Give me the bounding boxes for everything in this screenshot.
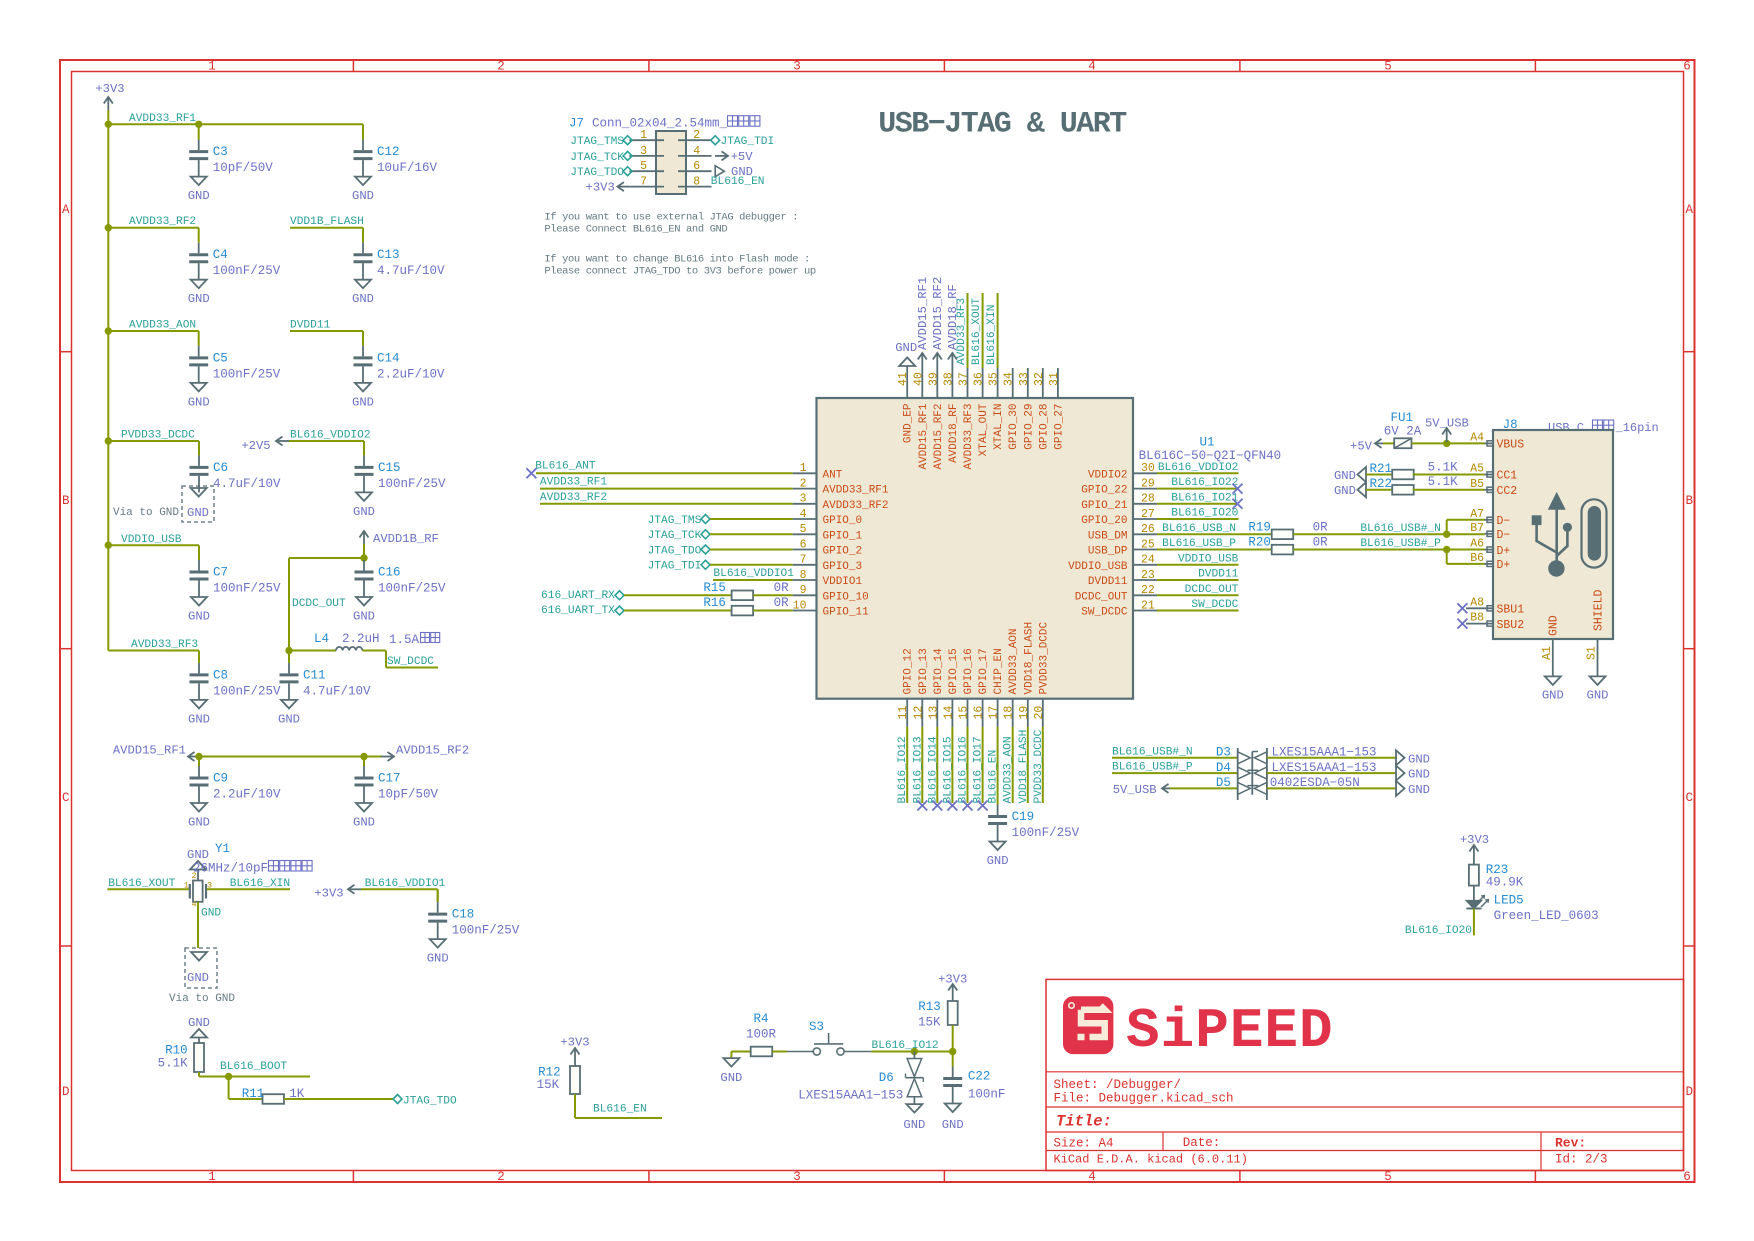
svg-text:25: 25 [1141, 538, 1155, 551]
svg-text:Rev:: Rev: [1555, 1136, 1586, 1151]
svg-text:VDD1B_FLASH: VDD1B_FLASH [290, 216, 364, 228]
svg-text:C: C [62, 791, 70, 805]
svg-text:100nF/25V: 100nF/25V [1012, 826, 1080, 840]
svg-text:5V_USB: 5V_USB [1113, 783, 1157, 797]
svg-text:GND: GND [187, 971, 209, 985]
svg-text:6: 6 [800, 538, 807, 551]
svg-text:VDD18_FLASH: VDD18_FLASH [1018, 730, 1030, 804]
svg-text:0R: 0R [1313, 520, 1329, 534]
svg-text:40: 40 [912, 372, 925, 386]
svg-text:BL616_IO20: BL616_IO20 [1405, 925, 1472, 937]
svg-text:2: 2 [192, 871, 197, 881]
svg-text:SBU1: SBU1 [1497, 604, 1525, 617]
svg-text:A: A [1685, 203, 1693, 217]
svg-text:AVDD15_RF1: AVDD15_RF1 [113, 744, 186, 758]
svg-text:BL616_IO21: BL616_IO21 [1171, 492, 1238, 504]
svg-text:R16: R16 [703, 596, 726, 610]
svg-text:C4: C4 [213, 248, 228, 262]
svg-text:4: 4 [800, 508, 807, 521]
svg-text:BL616_XIN: BL616_XIN [986, 305, 998, 365]
svg-text:15K: 15K [537, 1078, 560, 1092]
svg-text:+5V: +5V [731, 150, 754, 164]
svg-text:6V 2A: 6V 2A [1384, 425, 1422, 439]
svg-text:DCDC_OUT: DCDC_OUT [1185, 584, 1239, 596]
svg-text:JTAG_TDO: JTAG_TDO [403, 1096, 457, 1108]
svg-text:5: 5 [800, 523, 807, 536]
svg-text:0R: 0R [1313, 536, 1329, 550]
svg-text:JTAG_TDI: JTAG_TDI [648, 561, 702, 573]
svg-text:BL616_USB#_P: BL616_USB#_P [1112, 762, 1193, 774]
svg-text:GPIO_12: GPIO_12 [903, 648, 915, 694]
svg-text:GND: GND [188, 712, 210, 726]
svg-text:Conn_02x04_2.54mm_: Conn_02x04_2.54mm_ [592, 117, 728, 131]
svg-text:9: 9 [800, 584, 807, 597]
svg-text:32: 32 [1033, 372, 1046, 386]
svg-text:USB−JTAG & UART: USB−JTAG & UART [878, 108, 1127, 142]
svg-text:FU1: FU1 [1391, 411, 1414, 425]
svg-text:JTAG_TDO: JTAG_TDO [648, 545, 702, 557]
svg-text:100nF/25V: 100nF/25V [213, 582, 281, 596]
svg-text:10pF/50V: 10pF/50V [378, 788, 439, 802]
svg-text:VDDIO_USB: VDDIO_USB [1178, 553, 1239, 565]
svg-text:Y1: Y1 [215, 842, 230, 856]
svg-text:DVDD11: DVDD11 [290, 320, 331, 332]
svg-text:34: 34 [1003, 372, 1016, 386]
svg-text:20: 20 [1033, 706, 1046, 720]
svg-text:C14: C14 [377, 351, 400, 365]
svg-text:GPIO_13: GPIO_13 [918, 648, 930, 694]
svg-text:B7: B7 [1470, 522, 1484, 535]
svg-text:100R: 100R [746, 1028, 777, 1042]
svg-text:1.5A: 1.5A [389, 633, 420, 647]
svg-text:AVDD33_AON: AVDD33_AON [129, 320, 196, 332]
svg-text:35: 35 [988, 372, 1001, 386]
svg-text:GPIO_11: GPIO_11 [823, 607, 870, 619]
svg-text:+3V3: +3V3 [586, 181, 615, 195]
svg-text:D+: D+ [1497, 559, 1511, 572]
svg-text:37: 37 [958, 372, 971, 386]
svg-text:AVDD15_RF1: AVDD15_RF1 [916, 277, 930, 350]
svg-text:GND: GND [188, 395, 210, 409]
svg-text:BL616_IO17: BL616_IO17 [973, 736, 985, 803]
svg-text:GND: GND [353, 610, 375, 624]
svg-text:15: 15 [958, 706, 971, 720]
svg-text:AVDD33_RF2: AVDD33_RF2 [540, 492, 607, 504]
svg-text:+3V3: +3V3 [314, 887, 343, 901]
svg-text:GND: GND [1334, 469, 1356, 483]
svg-text:R11: R11 [242, 1087, 265, 1101]
svg-text:16: 16 [973, 706, 986, 720]
svg-text:100nF/25V: 100nF/25V [378, 477, 446, 491]
svg-text:A: A [62, 203, 70, 217]
svg-text:AVDD33_RF1: AVDD33_RF1 [129, 113, 196, 125]
svg-text:Title:: Title: [1056, 1113, 1112, 1131]
svg-text:PVDD33_DCDC: PVDD33_DCDC [1033, 729, 1045, 803]
svg-text:Via to GND: Via to GND [169, 993, 235, 1005]
svg-text:5: 5 [1384, 1170, 1392, 1184]
svg-text:1: 1 [800, 462, 807, 475]
svg-text:+3V3: +3V3 [95, 82, 124, 96]
svg-text:AVDD33_RF2: AVDD33_RF2 [129, 216, 196, 228]
svg-text:5.1K: 5.1K [1428, 461, 1459, 475]
svg-text:Size: A4: Size: A4 [1054, 1137, 1114, 1151]
svg-text:J7: J7 [569, 117, 584, 131]
svg-text:R21: R21 [1370, 462, 1393, 476]
svg-text:GND: GND [353, 816, 375, 830]
svg-text:BL616_VDDIO2: BL616_VDDIO2 [290, 430, 371, 442]
svg-text:15K: 15K [918, 1016, 941, 1030]
svg-text:GND: GND [427, 952, 449, 966]
svg-text:VDDIO2: VDDIO2 [1088, 469, 1128, 481]
svg-text:B6: B6 [1470, 552, 1484, 565]
svg-text:C15: C15 [378, 461, 401, 475]
svg-text:ANT: ANT [823, 469, 843, 481]
svg-text:4: 4 [1088, 60, 1096, 74]
svg-text:SW_DCDC: SW_DCDC [1191, 599, 1238, 611]
svg-text:100nF/25V: 100nF/25V [213, 264, 281, 278]
svg-text:BL616_IO20: BL616_IO20 [1171, 508, 1238, 520]
svg-text:2: 2 [800, 477, 807, 490]
svg-text:SW_DCDC: SW_DCDC [1081, 607, 1128, 619]
svg-text:27: 27 [1141, 508, 1155, 521]
svg-text:3: 3 [793, 1170, 801, 1184]
svg-text:GND: GND [188, 292, 210, 306]
svg-text:38: 38 [942, 372, 955, 386]
svg-text:BL616_VDDIO1: BL616_VDDIO1 [365, 878, 446, 890]
svg-text:GND: GND [895, 341, 917, 355]
svg-text:26MHz/10pF: 26MHz/10pF [193, 862, 268, 876]
svg-text:BL616_EN: BL616_EN [593, 1104, 647, 1116]
svg-text:13: 13 [927, 706, 940, 720]
svg-text:D+: D+ [1497, 545, 1511, 558]
svg-text:JTAG_TDO: JTAG_TDO [570, 167, 624, 179]
svg-text:_16pin: _16pin [1615, 421, 1659, 435]
svg-text:BL616_IO16: BL616_IO16 [958, 736, 970, 803]
svg-text:GPIO_27: GPIO_27 [1053, 404, 1065, 450]
svg-text:SHIELD: SHIELD [1592, 589, 1605, 631]
svg-text:18: 18 [1003, 706, 1016, 720]
svg-text:BL616_VDDIO1: BL616_VDDIO1 [713, 568, 794, 580]
svg-text:26: 26 [1141, 523, 1155, 536]
svg-text:1: 1 [208, 1170, 216, 1184]
svg-text:616_UART_TX: 616_UART_TX [541, 605, 615, 617]
svg-text:BL616_ANT: BL616_ANT [535, 460, 596, 472]
svg-text:C9: C9 [213, 772, 228, 786]
svg-text:BL616_XOUT: BL616_XOUT [971, 298, 983, 365]
svg-text:VDD18_FLASH: VDD18_FLASH [1023, 622, 1035, 695]
svg-text:8: 8 [800, 569, 807, 582]
svg-text:10pF/50V: 10pF/50V [213, 161, 274, 175]
svg-text:Please Connect BL616_EN and GN: Please Connect BL616_EN and GND [544, 224, 727, 236]
svg-text:GND: GND [1408, 752, 1430, 766]
svg-text:BL616_USB_P: BL616_USB_P [1162, 538, 1236, 550]
svg-text:5: 5 [1384, 60, 1392, 74]
svg-text:CC2: CC2 [1497, 485, 1518, 498]
svg-text:DCDC_OUT: DCDC_OUT [1075, 591, 1128, 603]
svg-text:21: 21 [1141, 599, 1155, 612]
svg-text:GND: GND [987, 854, 1009, 868]
svg-text:1: 1 [184, 881, 189, 891]
svg-text:GND: GND [942, 1118, 964, 1132]
svg-text:LXES15AAA1−153: LXES15AAA1−153 [798, 1089, 903, 1103]
svg-text:AVDD33_AON: AVDD33_AON [1003, 736, 1015, 803]
svg-text:AVDD33_RF2: AVDD33_RF2 [823, 500, 889, 512]
svg-text:GND: GND [187, 506, 209, 520]
svg-text:JTAG_TMS: JTAG_TMS [648, 515, 702, 527]
svg-text:31: 31 [1048, 372, 1061, 386]
svg-text:S1: S1 [1586, 646, 1599, 660]
svg-text:AVDD33_RF1: AVDD33_RF1 [823, 485, 889, 497]
svg-text:GPIO_15: GPIO_15 [948, 648, 960, 694]
svg-text:100nF/25V: 100nF/25V [213, 684, 281, 698]
svg-text:GND: GND [1542, 689, 1564, 703]
svg-text:10: 10 [793, 599, 807, 612]
svg-text:Date:: Date: [1183, 1136, 1221, 1150]
svg-text:VDDIO_USB: VDDIO_USB [121, 534, 182, 546]
svg-text:Via to GND: Via to GND [113, 507, 179, 519]
svg-text:D5: D5 [1216, 776, 1231, 790]
svg-text:C19: C19 [1012, 810, 1035, 824]
svg-text:DVDD11: DVDD11 [1088, 576, 1128, 588]
svg-text:BL616_IO22: BL616_IO22 [1171, 477, 1238, 489]
svg-text:GND: GND [353, 505, 375, 519]
svg-text:GPIO_28: GPIO_28 [1038, 404, 1050, 450]
svg-text:AVDD33_RF3: AVDD33_RF3 [131, 639, 198, 651]
svg-text:Please connect JTAG_TDO to 3V3: Please connect JTAG_TDO to 3V3 before po… [544, 265, 816, 277]
svg-text:+2V5: +2V5 [241, 439, 270, 453]
svg-text:JTAG_TCK: JTAG_TCK [648, 530, 702, 542]
svg-text:SiPEED: SiPEED [1126, 999, 1334, 1063]
svg-text:AVDD18_RF: AVDD18_RF [948, 404, 960, 463]
svg-text:AVDD15_RF2: AVDD15_RF2 [933, 404, 945, 470]
svg-text:C13: C13 [377, 248, 400, 262]
svg-text:4: 4 [693, 145, 700, 158]
svg-text:0R: 0R [774, 581, 790, 595]
svg-text:GND: GND [278, 712, 300, 726]
svg-text:GPIO_20: GPIO_20 [1081, 515, 1127, 527]
svg-text:BL616_BOOT: BL616_BOOT [220, 1061, 287, 1073]
svg-text:GND: GND [188, 610, 210, 624]
svg-text:GND: GND [1408, 768, 1430, 782]
svg-text:4.7uF/10V: 4.7uF/10V [213, 477, 281, 491]
svg-text:C18: C18 [452, 908, 475, 922]
svg-text:VDDIO1: VDDIO1 [823, 576, 863, 588]
svg-text:A1: A1 [1541, 646, 1554, 660]
svg-text:Sheet: /Debugger/: Sheet: /Debugger/ [1054, 1078, 1182, 1092]
svg-text:GND: GND [352, 292, 374, 306]
svg-text:24: 24 [1141, 554, 1155, 567]
svg-text:39: 39 [927, 372, 940, 386]
svg-text:CC1: CC1 [1497, 470, 1518, 483]
svg-text:100nF/25V: 100nF/25V [378, 582, 446, 596]
svg-text:A6: A6 [1470, 538, 1484, 551]
svg-text:C22: C22 [968, 1069, 991, 1083]
svg-text:GND: GND [352, 189, 374, 203]
svg-text:JTAG_TDI: JTAG_TDI [721, 136, 775, 148]
svg-text:S3: S3 [809, 1020, 824, 1034]
svg-text:GND: GND [720, 1071, 742, 1085]
svg-text:JTAG_TCK: JTAG_TCK [570, 152, 624, 164]
svg-text:GND: GND [188, 189, 210, 203]
svg-text:5.1K: 5.1K [1428, 475, 1459, 489]
svg-text:C8: C8 [213, 668, 228, 682]
svg-text:B8: B8 [1470, 612, 1484, 625]
svg-text:0R: 0R [774, 596, 790, 610]
svg-text:19: 19 [1018, 706, 1031, 720]
svg-text:GPIO_17: GPIO_17 [978, 648, 990, 694]
svg-text:Green_LED_0603: Green_LED_0603 [1494, 909, 1599, 923]
svg-text:GPIO_3: GPIO_3 [823, 561, 863, 573]
svg-text:6: 6 [1683, 1170, 1691, 1184]
svg-text:1: 1 [640, 129, 647, 142]
svg-text:3: 3 [800, 493, 807, 506]
svg-text:2.2uF/10V: 2.2uF/10V [213, 788, 281, 802]
svg-text:AVDD15_RF2: AVDD15_RF2 [931, 277, 945, 350]
svg-text:C6: C6 [213, 461, 228, 475]
svg-text:2: 2 [497, 1170, 505, 1184]
svg-text:GPIO_21: GPIO_21 [1081, 500, 1128, 512]
svg-text:BL616_USB#_N: BL616_USB#_N [1360, 523, 1441, 535]
svg-text:4: 4 [1088, 1170, 1096, 1184]
svg-text:6: 6 [693, 160, 700, 173]
svg-text:616_UART_RX: 616_UART_RX [541, 590, 615, 602]
svg-text:3: 3 [793, 60, 801, 74]
svg-text:D4: D4 [1216, 761, 1231, 775]
svg-text:C: C [1685, 791, 1693, 805]
svg-text:1: 1 [208, 60, 216, 74]
svg-text:GND: GND [903, 1118, 925, 1132]
svg-text:7: 7 [640, 176, 647, 189]
svg-text:R15: R15 [703, 581, 726, 595]
svg-text:5: 5 [640, 160, 647, 173]
svg-text:12: 12 [912, 706, 925, 720]
svg-text:File: Debugger.kicad_sch: File: Debugger.kicad_sch [1054, 1092, 1234, 1106]
svg-text:D6: D6 [879, 1071, 894, 1085]
svg-text:If you want to use external JT: If you want to use external JTAG debugge… [544, 212, 798, 224]
svg-text:A7: A7 [1470, 508, 1484, 521]
svg-text:GPIO_14: GPIO_14 [933, 648, 945, 695]
svg-text:XTAL_IN: XTAL_IN [993, 404, 1005, 450]
svg-text:DVDD11: DVDD11 [1198, 569, 1239, 581]
svg-text:GPIO_2: GPIO_2 [823, 546, 863, 558]
svg-text:GND: GND [352, 395, 374, 409]
svg-text:B5: B5 [1470, 478, 1484, 491]
svg-text:GPIO_22: GPIO_22 [1081, 485, 1127, 497]
svg-text:GND: GND [188, 816, 210, 830]
svg-text:BL616_IO14: BL616_IO14 [927, 736, 939, 803]
svg-text:AVDD15_RF2: AVDD15_RF2 [396, 744, 469, 758]
svg-text:BL616_USB#_N: BL616_USB#_N [1112, 746, 1193, 758]
svg-text:JTAG_TMS: JTAG_TMS [570, 136, 624, 148]
svg-text:2: 2 [497, 60, 505, 74]
svg-text:GPIO_1: GPIO_1 [823, 530, 863, 542]
svg-text:VBUS: VBUS [1497, 439, 1525, 452]
svg-text:C16: C16 [378, 566, 401, 580]
svg-text:4.7uF/10V: 4.7uF/10V [303, 684, 371, 698]
svg-text:DCDC_OUT: DCDC_OUT [292, 598, 346, 610]
svg-text:BL616_VDDIO2: BL616_VDDIO2 [1158, 462, 1239, 474]
svg-text:33: 33 [1018, 372, 1031, 386]
svg-text:GND: GND [1408, 783, 1430, 797]
svg-text:3: 3 [640, 145, 647, 158]
svg-text:8: 8 [693, 176, 700, 189]
svg-text:4: 4 [192, 900, 197, 910]
svg-text:R4: R4 [753, 1012, 768, 1026]
svg-text:GND_EP: GND_EP [903, 403, 915, 443]
svg-text:C7: C7 [213, 566, 228, 580]
svg-text:GPIO_0: GPIO_0 [823, 515, 863, 527]
svg-text:10uF/16V: 10uF/16V [377, 161, 438, 175]
svg-text:LED5: LED5 [1494, 893, 1524, 907]
svg-text:GPIO_10: GPIO_10 [823, 591, 869, 603]
svg-text:30: 30 [1141, 462, 1155, 475]
svg-text:7: 7 [800, 554, 807, 567]
svg-text:Id: 2/3: Id: 2/3 [1555, 1153, 1608, 1167]
svg-text:AVDD33_RF3: AVDD33_RF3 [963, 404, 975, 470]
svg-text:PVDD33_DCDC: PVDD33_DCDC [121, 430, 195, 442]
svg-text:C12: C12 [377, 145, 400, 159]
svg-text:BL616_XOUT: BL616_XOUT [108, 878, 175, 890]
svg-text:17: 17 [988, 706, 1001, 720]
svg-text:5.1K: 5.1K [158, 1056, 189, 1070]
svg-text:PVDD33_DCDC: PVDD33_DCDC [1038, 621, 1050, 694]
svg-text:14: 14 [942, 706, 955, 720]
svg-text:AVDD1B_RF: AVDD1B_RF [373, 532, 439, 546]
svg-text:22: 22 [1141, 584, 1155, 597]
svg-text:GND: GND [201, 908, 221, 920]
svg-text:B: B [62, 494, 70, 508]
svg-text:BL616_USB_N: BL616_USB_N [1162, 523, 1236, 535]
svg-text:C5: C5 [213, 351, 228, 365]
svg-text:49.9K: 49.9K [1486, 876, 1524, 890]
svg-text:41: 41 [897, 372, 910, 386]
svg-text:6: 6 [1683, 60, 1691, 74]
svg-text:100nF/25V: 100nF/25V [213, 367, 281, 381]
svg-text:USB_DM: USB_DM [1088, 530, 1128, 542]
svg-text:B: B [1685, 494, 1693, 508]
svg-text:D: D [62, 1085, 70, 1099]
svg-text:2: 2 [693, 129, 700, 142]
svg-text:23: 23 [1141, 569, 1155, 582]
svg-text:+5V: +5V [1350, 440, 1373, 454]
svg-text:4.7uF/10V: 4.7uF/10V [377, 264, 445, 278]
svg-text:BL616_IO13: BL616_IO13 [912, 736, 924, 803]
svg-text:USB_DP: USB_DP [1088, 546, 1128, 558]
svg-text:A5: A5 [1470, 463, 1484, 476]
svg-text:2.2uH: 2.2uH [342, 632, 380, 646]
svg-text:CHIP_EN: CHIP_EN [993, 648, 1005, 694]
svg-text:R22: R22 [1370, 477, 1393, 491]
svg-text:BL616_IO12: BL616_IO12 [872, 1040, 939, 1052]
svg-text:100nF: 100nF [968, 1088, 1006, 1102]
svg-text:D−: D− [1497, 529, 1511, 542]
svg-text:R19: R19 [1248, 520, 1271, 534]
svg-text:11: 11 [897, 706, 910, 720]
svg-text:C11: C11 [303, 668, 326, 682]
svg-text:SW_DCDC: SW_DCDC [387, 656, 434, 668]
svg-text:AVDD33_RF1: AVDD33_RF1 [540, 477, 607, 489]
svg-text:AVDD33_RF3: AVDD33_RF3 [956, 298, 968, 365]
svg-text:D: D [1685, 1085, 1693, 1099]
svg-text:36: 36 [973, 372, 986, 386]
svg-text:100nF/25V: 100nF/25V [452, 924, 520, 938]
svg-text:GPIO_16: GPIO_16 [963, 648, 975, 694]
svg-text:VDDIO_USB: VDDIO_USB [1068, 561, 1128, 573]
svg-text:R13: R13 [918, 1000, 941, 1014]
svg-text:GPIO_29: GPIO_29 [1023, 404, 1035, 450]
svg-text:GND: GND [1334, 484, 1356, 498]
svg-text:D−: D− [1497, 515, 1511, 528]
